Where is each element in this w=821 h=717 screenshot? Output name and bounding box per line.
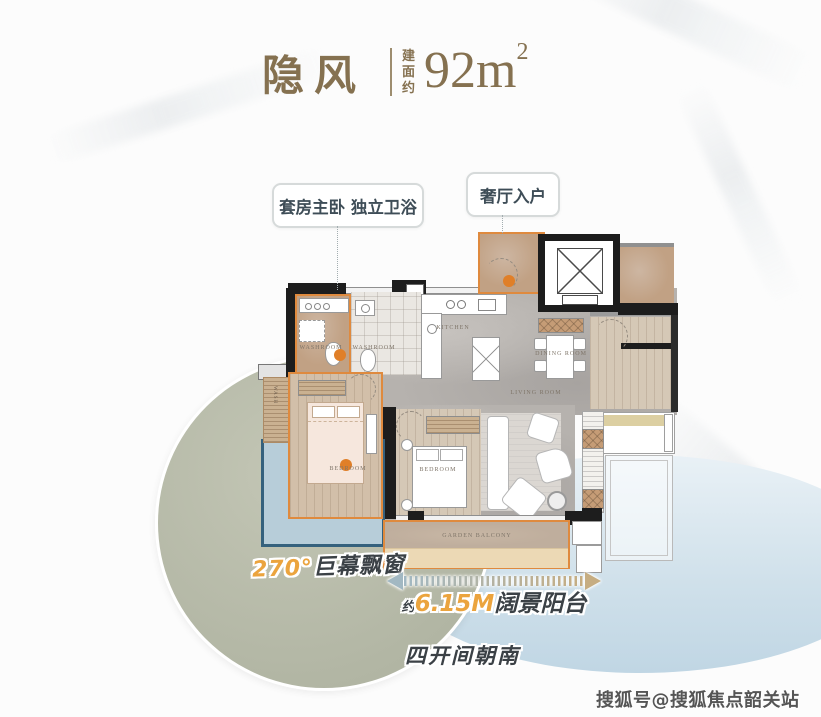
ac-box [576,545,602,573]
cabinet-entry-hall [538,318,584,333]
vanity-knob [314,303,321,310]
wall-right-outer [671,315,678,412]
elevator-x-icon [558,249,602,293]
leader-line-suite [337,226,338,290]
wardrobe-bedroom-second [426,416,480,434]
nightstand-lamp [401,499,413,511]
elevator-door [562,295,598,305]
marble-vein [564,0,817,93]
callout-entry: 奢厅入户 [466,172,560,217]
area-label: 建面约 [402,49,417,97]
pier-hatch-top [582,429,604,449]
door-arc-master [346,374,376,404]
door-arc-entry [484,258,518,292]
ac-box [572,521,602,545]
label-bedroom-second: BEDROOM [412,467,464,473]
label-wardrobe: WASH [272,386,277,404]
title-divider [390,48,392,96]
label-garden-balcony: GARDEN BALCONY [422,533,532,539]
plan-title: 隐风 [262,42,366,103]
label-washroom: WASHROOM [348,345,400,351]
kitchen-counter-top [421,294,507,315]
balcony-annotation: 约6.15M阔景阳台 [378,584,610,618]
vanity-common [355,300,375,316]
callout-entry-label: 奢厅入户 [480,183,546,207]
bay-window-value: 270° [252,556,314,583]
vanity-knob [323,303,330,310]
vanity-suite [299,298,349,313]
elevator-shaft [538,234,620,312]
bay-window-annotation: 270°巨幕飘窗 [251,546,405,583]
orientation-annotation: 四开间朝南 [405,640,520,670]
right-balcony-band [604,415,672,426]
label-kitchen: KITCHEN [427,325,479,331]
platform-outline [605,455,673,561]
kitchen-counter-left [421,313,442,379]
stove-burner [457,300,466,309]
callout-master-suite: 套房主卧 独立卫浴 [272,183,424,228]
wall-right-top [618,303,678,315]
pillow [416,449,439,461]
bed-crease [308,421,363,422]
label-bedroom-master: BEDROOM [322,466,374,472]
toilet-common [360,349,376,372]
watermark: 搜狐号@搜狐焦点韶关站 [596,686,800,712]
shower-suite [299,320,325,342]
dining-chair [534,360,547,372]
pillow [337,406,360,418]
coffee-table [547,491,567,511]
label-living-room: LIVING ROOM [508,390,564,396]
platform-outline-inner [610,460,668,556]
suite-washroom [295,294,351,374]
floor-plan: WASHROOM WASHROOM KITCHEN DINING ROOM [250,225,690,575]
bench-master [366,414,377,454]
pillow [312,406,335,418]
pillow [440,449,463,461]
bed-second [412,446,467,508]
entry-zone [478,232,545,294]
dining-chair [573,360,586,372]
floorplan-poster: 隐风 建面约 92m2 套房主卧 独立卫浴 奢厅入户 [0,0,821,717]
garden-balcony-band [385,548,568,568]
marble-vein [676,80,805,310]
pier-hatch-bottom [582,489,604,509]
area-value: 92m2 [424,40,528,97]
dining-chair [534,338,547,350]
garden-balcony: GARDEN BALCONY [383,520,570,569]
suite-bedroom [288,372,383,519]
label-dining-room: DINING ROOM [533,351,589,357]
vanity-basin [361,304,370,313]
dining-table [546,335,574,379]
wardrobe-left-strip: WASH [263,377,290,443]
wall-block-entry-right [616,243,674,307]
elevator-car [557,248,603,294]
balcony-label: 阔景阳台 [494,591,586,617]
window-top-2 [426,287,480,294]
callout-master-suite-label: 套房主卧 独立卫浴 [279,194,417,218]
floor-right-room [590,317,674,409]
stove-burner [446,300,455,309]
kitchen-sink [478,299,496,311]
leader-line-entry [502,215,503,235]
nightstand-lamp [401,439,413,451]
kitchen-island [472,337,500,381]
area-exponent: 2 [516,39,528,65]
right-balcony-cap [664,414,673,452]
balcony-value: 6.15M [415,591,495,617]
balcony-prefix: 约 [402,600,415,615]
dining-chair [573,338,586,350]
wall-right-room-divider [621,343,674,349]
wardrobe-master [298,380,346,396]
area-number: 92m [424,42,516,99]
label-washroom-suite: WASHROOM [298,345,344,351]
vanity-knob [305,303,312,310]
